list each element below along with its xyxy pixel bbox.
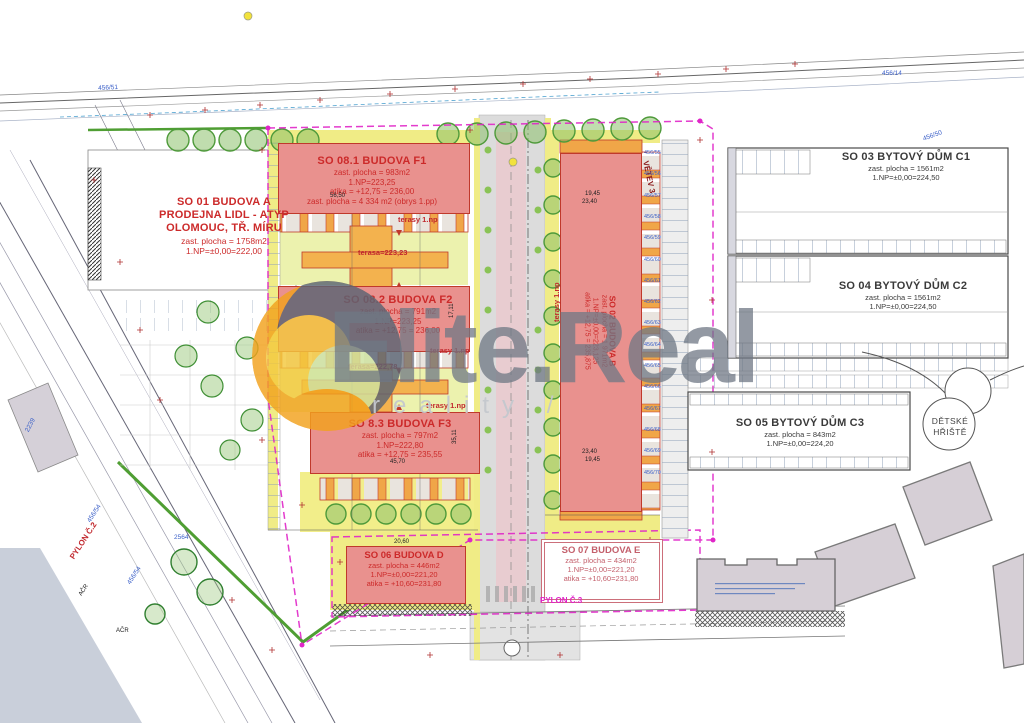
label-line: zast. plocha = 446m2 bbox=[364, 561, 443, 570]
site-plan: SO 01 BUDOVA A PRODEJNA LIDL - ATYP OLOM… bbox=[0, 0, 1024, 723]
label-line: 1.NP=±0,00=224,50 bbox=[839, 302, 967, 311]
label-line: zast. plocha = 1561m2 bbox=[839, 293, 967, 302]
base-drawing bbox=[0, 0, 1024, 723]
annotation-ačr: AČR bbox=[116, 628, 129, 634]
label-line: OLOMOUC, TŘ. MÍRU bbox=[159, 222, 289, 235]
label-building-c1: SO 03 BYTOVÝ DŮM C1 zast. plocha = 1561m… bbox=[842, 151, 970, 182]
annotation-19-45: 19,45 bbox=[585, 191, 600, 197]
annotation-456/55: 456/55 bbox=[644, 150, 661, 156]
annotation-456/51: 456/51 bbox=[98, 84, 118, 92]
annotation-56-50: 56,50 bbox=[330, 193, 345, 199]
label-line: PRODEJNA LIDL - ATYP bbox=[159, 209, 289, 222]
label-line: SO 06 BUDOVA D bbox=[364, 550, 443, 561]
annotation-456/65: 456/65 bbox=[644, 363, 661, 369]
label-building-d: SO 06 BUDOVA D zast. plocha = 446m2 1.NP… bbox=[364, 550, 443, 588]
annotation-terasy-1-np: terasy 1.np bbox=[552, 282, 561, 322]
annotation-terasy-1-np: terasy 1.np bbox=[398, 215, 438, 224]
label-line: SO 02 BUDOVA B bbox=[607, 292, 617, 370]
annotation-456/14: 456/14 bbox=[882, 70, 902, 77]
label-building-f1: SO 08.1 BUDOVA F1 zast. plocha = 983m2 1… bbox=[307, 155, 437, 207]
annotation-456/64: 456/64 bbox=[644, 342, 661, 348]
label-line: atika = +12,75 = 235,875 bbox=[582, 292, 590, 370]
annotation-23-40: 23,40 bbox=[582, 199, 597, 205]
annotation-23-40: 23,40 bbox=[582, 449, 597, 455]
existing-buildings bbox=[697, 462, 1024, 668]
label-building-c3: SO 05 BYTOVÝ DŮM C3 zast. plocha = 843m2… bbox=[736, 417, 864, 448]
label-line: zast. plocha = 1 971m2 bbox=[599, 292, 607, 370]
label-line: 1.NP=±0,00=222,00 bbox=[159, 246, 289, 256]
annotation-2564: 2564 bbox=[174, 534, 188, 541]
label-line: zast. plocha = 843m2 bbox=[736, 430, 864, 439]
annotation-456/70: 456/70 bbox=[644, 470, 661, 476]
label-line: atika = +12,75 = 236,00 bbox=[343, 326, 452, 336]
annotation-456/56: 456/56 bbox=[644, 171, 661, 177]
label-line: zast. plocha = 791m2 bbox=[343, 307, 452, 317]
annotation-456/59: 456/59 bbox=[644, 235, 661, 241]
label-line: zast. plocha = 797m2 bbox=[349, 431, 452, 441]
label-line: SO 08.2 BUDOVA F2 bbox=[343, 294, 452, 307]
annotation-456/68: 456/68 bbox=[644, 427, 661, 433]
annotation-456/60: 456/60 bbox=[644, 257, 661, 263]
label-building-a: SO 01 BUDOVA A PRODEJNA LIDL - ATYP OLOM… bbox=[159, 196, 289, 256]
label-line: 1.NP=223,25 bbox=[307, 178, 437, 188]
label-line: 1.NP=223,25 bbox=[343, 317, 452, 327]
annotation-17-11: 17,11 bbox=[449, 303, 455, 318]
label-building-c2: SO 04 BYTOVÝ DŮM C2 zast. plocha = 1561m… bbox=[839, 280, 967, 311]
label-line: atika = +10,60=231,80 bbox=[364, 579, 443, 588]
label-line: zast. plocha = 983m2 bbox=[307, 168, 437, 178]
annotation-terasy-1-np: terasy 1.np bbox=[430, 346, 470, 355]
label-line: 1.NP=±0,00=223,125 bbox=[591, 292, 599, 370]
annotation-456/57: 456/57 bbox=[644, 193, 661, 199]
annotation-terasa-223-23: terasa=223,23 bbox=[358, 248, 407, 257]
annotation-terasa-222-78: terasa=222,78 bbox=[348, 362, 397, 371]
label-line: 1.NP=±0,00=224,20 bbox=[736, 439, 864, 448]
label-line: HŘIŠTĚ bbox=[932, 427, 968, 438]
label-line: SO 08.1 BUDOVA F1 bbox=[307, 155, 437, 168]
label-line: zast. plocha = 1561m2 bbox=[842, 164, 970, 173]
label-line: zast. plocha = 4 334 m2 (obrys 1.pp) bbox=[307, 197, 437, 207]
label-line: SO 07 BUDOVA E bbox=[562, 545, 641, 556]
label-line: DĚTSKÉ bbox=[932, 416, 968, 427]
label-playground: DĚTSKÉ HŘIŠTĚ bbox=[932, 416, 968, 437]
annotation-pylon-č-3: PYLON Č.3 bbox=[540, 596, 582, 605]
label-building-f2: SO 08.2 BUDOVA F2 zast. plocha = 791m2 1… bbox=[343, 294, 452, 336]
label-line: 1.NP=±0,00=221,20 bbox=[364, 570, 443, 579]
label-line: 1.NP=222,80 bbox=[349, 441, 452, 451]
label-line: zast. plocha = 1758m2 bbox=[159, 236, 289, 246]
label-line: SO 01 BUDOVA A bbox=[159, 196, 289, 209]
label-line: SO 05 BYTOVÝ DŮM C3 bbox=[736, 417, 864, 430]
annotation-35-11: 35,11 bbox=[452, 429, 458, 444]
label-line: atika = +10,60=231,80 bbox=[562, 574, 641, 583]
annotation-456/63: 456/63 bbox=[644, 320, 661, 326]
label-line: SO 8.3 BUDOVA F3 bbox=[349, 418, 452, 431]
label-building-f3: SO 8.3 BUDOVA F3 zast. plocha = 797m2 1.… bbox=[349, 418, 452, 460]
label-line: atika = +12,75 = 236,00 bbox=[307, 187, 437, 197]
annotation-456/67: 456/67 bbox=[644, 406, 661, 412]
annotation-45-70: 45,70 bbox=[390, 459, 405, 465]
label-line: 1.NP=±0,00=224,50 bbox=[842, 173, 970, 182]
label-line: 1.NP=±0,00=221,20 bbox=[562, 565, 641, 574]
annotation-terasy-1-np: terasy 1.np bbox=[426, 401, 466, 410]
annotation-19-45: 19,45 bbox=[585, 457, 600, 463]
label-line: SO 03 BYTOVÝ DŮM C1 bbox=[842, 151, 970, 164]
annotation-456/58: 456/58 bbox=[644, 214, 661, 220]
label-line: SO 04 BYTOVÝ DŮM C2 bbox=[839, 280, 967, 293]
annotation-456/61: 456/61 bbox=[644, 278, 661, 284]
label-line: zast. plocha = 434m2 bbox=[562, 556, 641, 565]
label-building-b: SO 02 BUDOVA B zast. plocha = 1 971m2 1.… bbox=[582, 292, 617, 370]
label-building-e: SO 07 BUDOVA E zast. plocha = 434m2 1.NP… bbox=[562, 545, 641, 583]
annotation-20-60: 20,60 bbox=[394, 539, 409, 545]
annotation-456/66: 456/66 bbox=[644, 384, 661, 390]
annotation-456/69: 456/69 bbox=[644, 448, 661, 454]
annotation-456/62: 456/62 bbox=[644, 299, 661, 305]
